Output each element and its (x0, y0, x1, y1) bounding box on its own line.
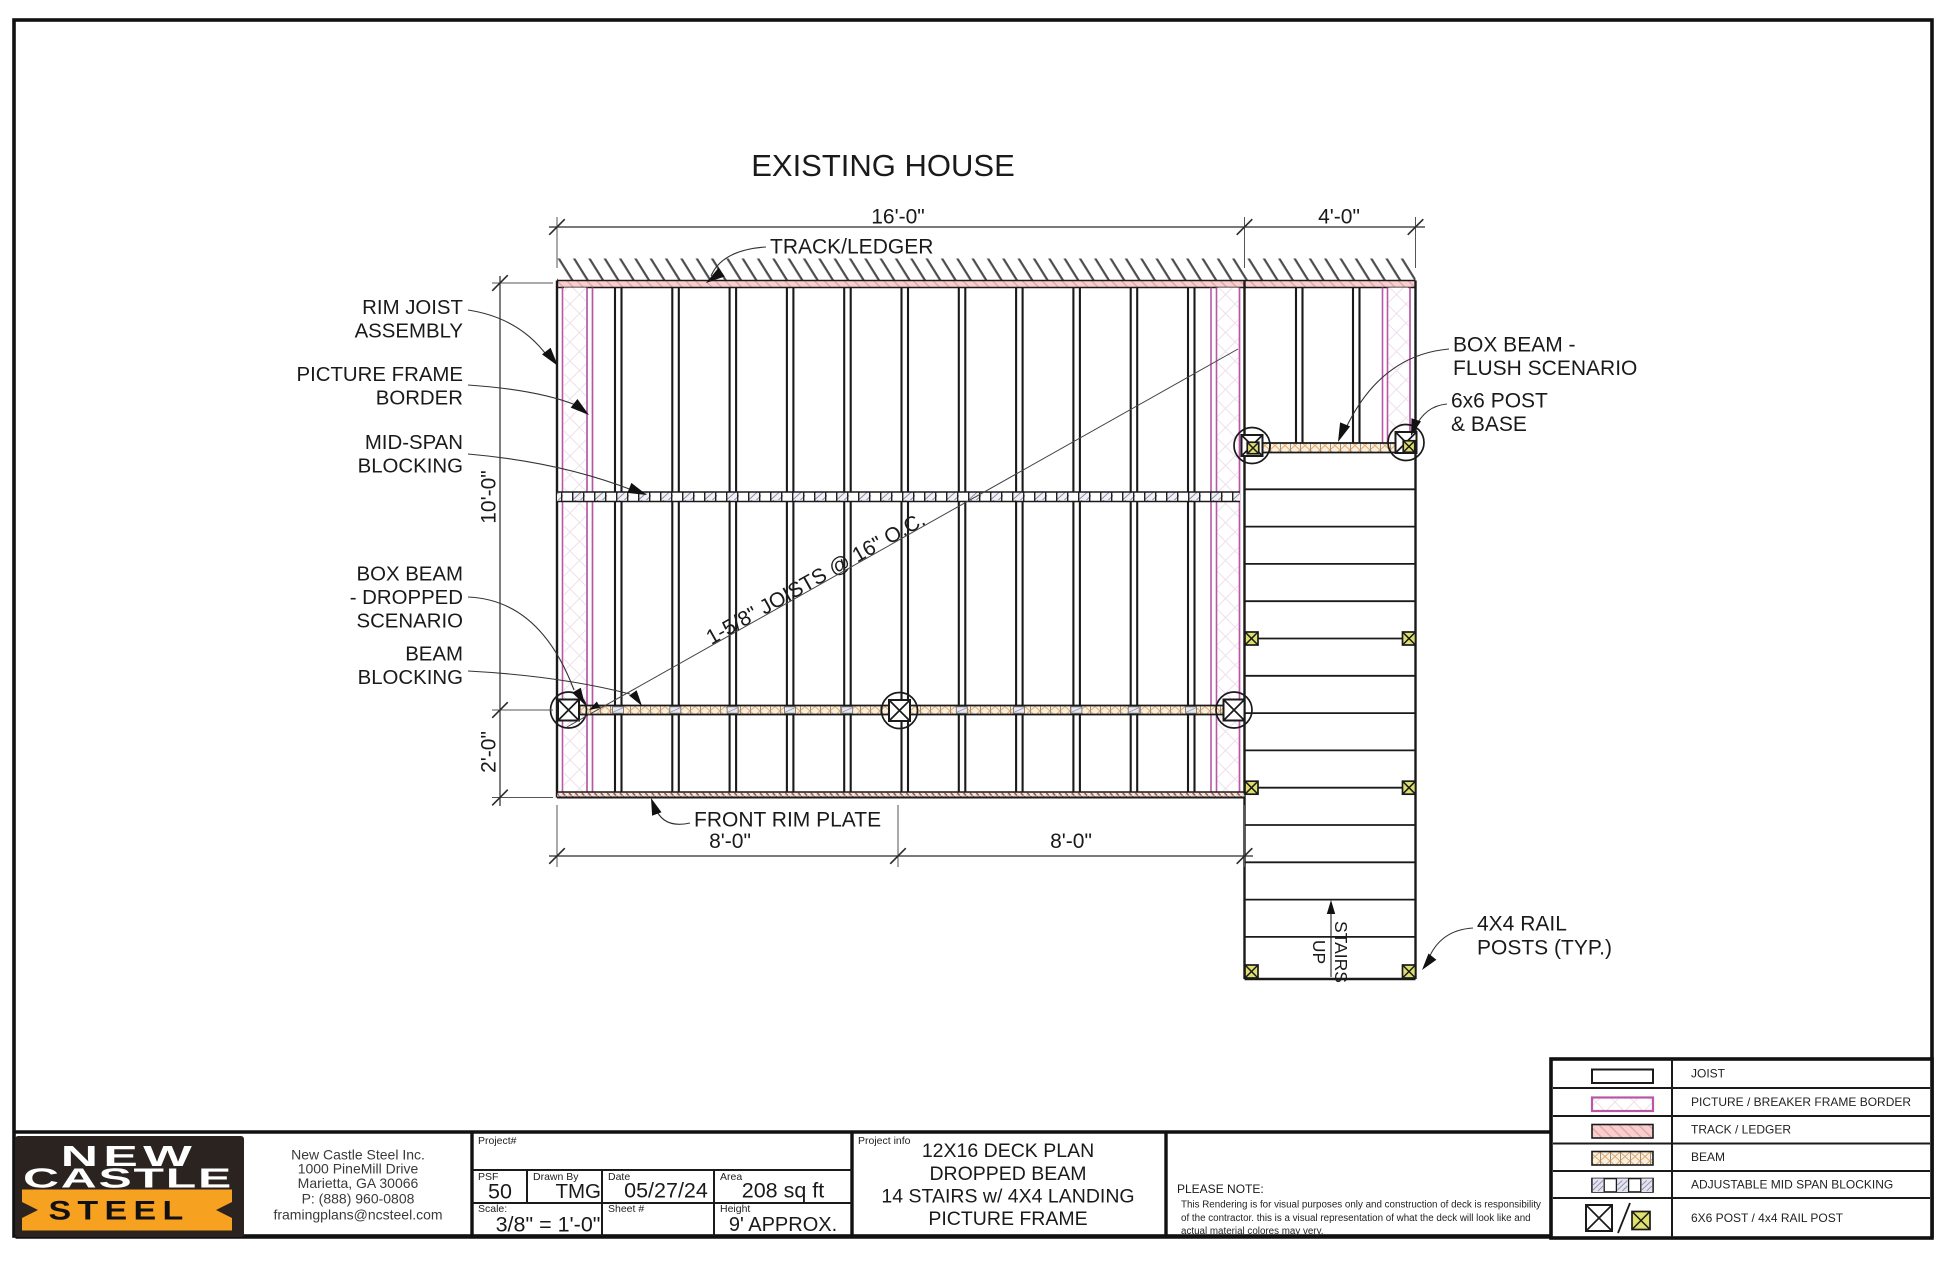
svg-text:14 STAIRS w/ 4X4 LANDING: 14 STAIRS w/ 4X4 LANDING (881, 1186, 1134, 1208)
svg-text:- DROPPED: - DROPPED (350, 587, 463, 609)
svg-text:EXISTING HOUSE: EXISTING HOUSE (751, 148, 1015, 183)
svg-text:MID-SPAN: MID-SPAN (365, 432, 463, 454)
svg-text:9' APPROX.: 9' APPROX. (729, 1214, 837, 1236)
svg-text:This Rendering is for visual p: This Rendering is for visual purposes on… (1181, 1200, 1541, 1211)
svg-text:8'-0": 8'-0" (709, 830, 751, 853)
svg-text:4X4 RAIL: 4X4 RAIL (1477, 913, 1567, 936)
svg-text:50: 50 (488, 1180, 512, 1204)
svg-text:BLOCKING: BLOCKING (358, 456, 463, 478)
svg-text:POSTS (TYP.): POSTS (TYP.) (1477, 937, 1612, 960)
svg-text:STEEL: STEEL (48, 1195, 189, 1226)
svg-text:TMG: TMG (555, 1180, 601, 1203)
svg-text:FRONT RIM PLATE: FRONT RIM PLATE (694, 809, 881, 832)
svg-text:BOX BEAM: BOX BEAM (356, 564, 463, 586)
svg-text:BEAM: BEAM (405, 644, 463, 666)
svg-text:208 sq ft: 208 sq ft (742, 1179, 824, 1203)
svg-text:05/27/24: 05/27/24 (624, 1179, 708, 1203)
svg-text:Marietta, GA 30066: Marietta, GA 30066 (298, 1175, 419, 1191)
svg-text:2'-0": 2'-0" (478, 731, 501, 773)
svg-text:SCENARIO: SCENARIO (356, 611, 463, 633)
svg-text:TRACK / LEDGER: TRACK / LEDGER (1691, 1123, 1791, 1137)
svg-text:4'-0": 4'-0" (1318, 206, 1360, 229)
svg-text:BLOCKING: BLOCKING (358, 667, 463, 689)
svg-text:PLEASE NOTE:: PLEASE NOTE: (1177, 1182, 1264, 1196)
svg-text:ASSEMBLY: ASSEMBLY (355, 321, 464, 343)
svg-text:12X16 DECK PLAN: 12X16 DECK PLAN (922, 1140, 1094, 1162)
svg-text:RIM JOIST: RIM JOIST (362, 297, 463, 319)
svg-text:& BASE: & BASE (1451, 413, 1527, 436)
svg-text:PICTURE FRAME: PICTURE FRAME (928, 1208, 1087, 1230)
svg-text:UP: UP (1309, 940, 1329, 964)
svg-text:BOX BEAM -: BOX BEAM - (1453, 334, 1576, 357)
svg-text:CASTLE: CASTLE (23, 1162, 233, 1194)
svg-text:8'-0": 8'-0" (1050, 830, 1092, 853)
svg-text:6x6 POST: 6x6 POST (1451, 390, 1548, 413)
svg-text:actual material colores may ve: actual material colores may very. (1181, 1226, 1323, 1237)
svg-text:PICTURE / BREAKER FRAME BORDER: PICTURE / BREAKER FRAME BORDER (1691, 1095, 1911, 1109)
svg-text:BEAM: BEAM (1691, 1150, 1725, 1164)
svg-text:P: (888) 960-0808: P: (888) 960-0808 (302, 1191, 415, 1207)
svg-text:16'-0": 16'-0" (871, 206, 925, 229)
svg-text:FLUSH SCENARIO: FLUSH SCENARIO (1453, 357, 1637, 380)
svg-text:Project info: Project info (858, 1135, 911, 1147)
svg-text:JOIST: JOIST (1691, 1067, 1726, 1081)
svg-text:3/8" = 1'-0": 3/8" = 1'-0" (496, 1213, 601, 1237)
svg-text:Sheet #: Sheet # (608, 1203, 644, 1215)
svg-text:Project#: Project# (478, 1135, 517, 1147)
svg-text:BORDER: BORDER (376, 388, 463, 410)
svg-text:STAIRS: STAIRS (1331, 921, 1351, 983)
svg-text:TRACK/LEDGER: TRACK/LEDGER (770, 236, 933, 259)
svg-text:PICTURE FRAME: PICTURE FRAME (296, 364, 463, 386)
svg-text:Area: Area (720, 1171, 742, 1183)
svg-text:of the contractor. this is a v: of the contractor. this is a visual repr… (1181, 1213, 1531, 1224)
svg-text:ADJUSTABLE MID SPAN BLOCKING: ADJUSTABLE MID SPAN BLOCKING (1691, 1178, 1893, 1192)
svg-text:DROPPED BEAM: DROPPED BEAM (929, 1163, 1086, 1185)
svg-text:10'-0": 10'-0" (478, 470, 501, 524)
svg-text:6X6 POST / 4x4 RAIL POST: 6X6 POST / 4x4 RAIL POST (1691, 1211, 1844, 1225)
svg-text:framingplans@ncsteel.com: framingplans@ncsteel.com (273, 1207, 442, 1223)
